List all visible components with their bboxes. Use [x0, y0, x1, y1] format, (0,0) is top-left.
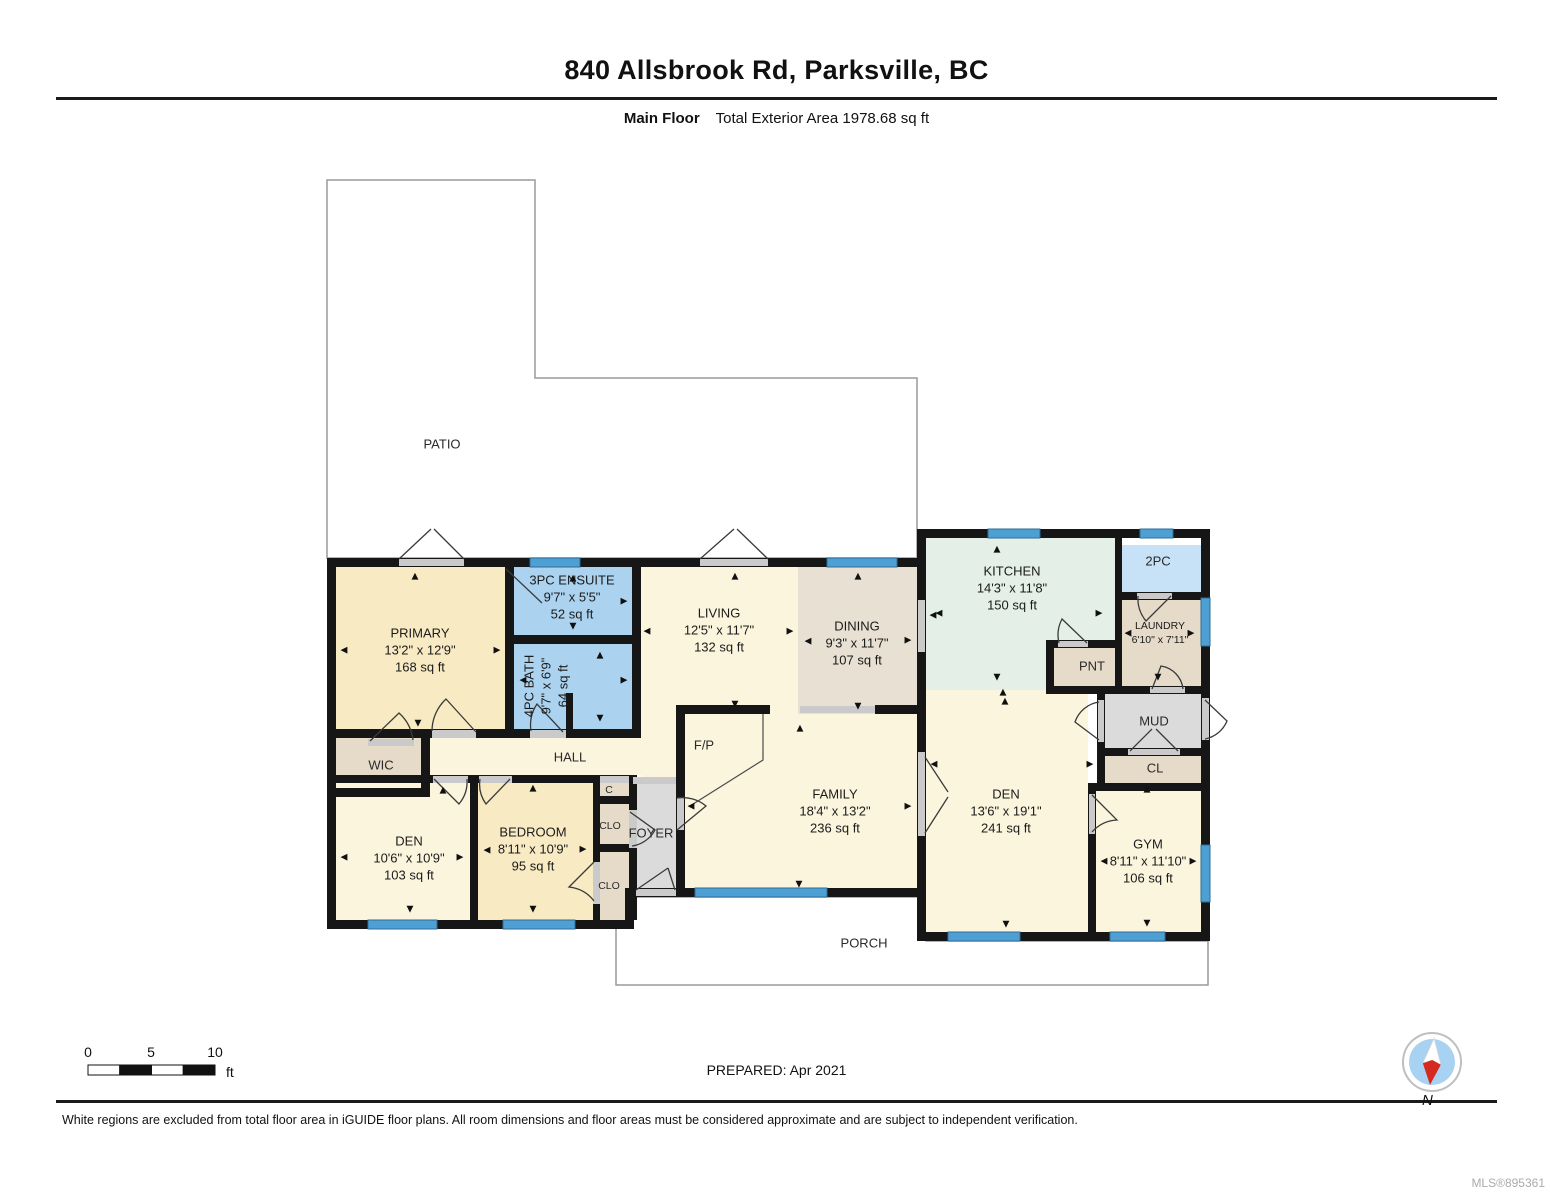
room-fill — [336, 567, 505, 738]
room-fill — [1105, 756, 1201, 783]
door-opening — [399, 559, 464, 566]
scale-tick-0: 0 — [84, 1044, 92, 1060]
wall-segment — [470, 783, 478, 920]
window — [368, 920, 437, 929]
room-fill — [685, 714, 917, 888]
room-fill — [1122, 600, 1201, 686]
window — [1110, 932, 1165, 941]
door-opening — [633, 777, 676, 784]
wall-segment — [632, 558, 641, 738]
room-fill — [1122, 545, 1201, 592]
scale-tick-5: 5 — [147, 1044, 155, 1060]
window — [988, 529, 1040, 538]
door-opening — [700, 559, 768, 566]
floor-name: Main Floor — [624, 110, 700, 127]
room-fill — [641, 705, 676, 777]
room-fill — [926, 690, 1088, 932]
room-fill — [1054, 648, 1115, 686]
wall-segment — [1088, 783, 1210, 791]
door-opening — [800, 706, 875, 713]
wall-segment — [1046, 686, 1210, 694]
window — [530, 558, 580, 567]
disclaimer-text: White regions are excluded from total fl… — [62, 1113, 1078, 1127]
mls-number: MLS®895361 — [1471, 1176, 1545, 1190]
room-fill — [637, 784, 676, 888]
door-opening — [368, 739, 414, 746]
wall-segment — [327, 788, 430, 797]
header-divider — [56, 97, 1497, 100]
window — [948, 932, 1020, 941]
window — [827, 558, 897, 567]
room-fill — [510, 567, 632, 635]
door-opening — [600, 776, 629, 783]
window — [1201, 598, 1210, 646]
wall-segment — [566, 693, 573, 729]
door-opening — [433, 776, 468, 783]
page-title: 840 Allsbrook Rd, Parksville, BC — [0, 55, 1553, 86]
wall-segment — [1115, 538, 1122, 694]
door-opening — [1150, 687, 1185, 693]
door-opening — [1128, 749, 1180, 755]
wall-segment — [676, 705, 770, 714]
wall-segment — [917, 529, 926, 567]
window — [695, 888, 827, 897]
window — [503, 920, 575, 929]
prepared-date: PREPARED: Apr 2021 — [0, 1062, 1553, 1078]
window — [1201, 845, 1210, 902]
window — [1140, 529, 1173, 538]
room-fill — [600, 804, 629, 844]
floor-subtitle: Main FloorTotal Exterior Area 1978.68 sq… — [0, 110, 1553, 127]
exterior-area: Total Exterior Area 1978.68 sq ft — [716, 110, 929, 127]
door-opening — [1058, 641, 1088, 647]
door-opening — [1202, 698, 1209, 740]
room-fill — [600, 783, 629, 796]
door-opening — [1137, 593, 1172, 599]
room-fill — [336, 783, 470, 920]
door-opening — [530, 730, 566, 738]
room-fill — [478, 783, 593, 920]
footer-divider — [56, 1100, 1497, 1103]
door-opening — [918, 600, 925, 652]
patio-outline — [327, 180, 917, 558]
compass-north-label: N — [1422, 1092, 1433, 1109]
room-fill — [641, 567, 798, 715]
door-opening — [1098, 700, 1104, 742]
door-opening — [593, 862, 600, 904]
door-opening — [432, 730, 476, 738]
door-opening — [636, 889, 676, 896]
room-fill — [798, 567, 917, 715]
wall-segment — [505, 635, 641, 644]
scale-tick-10: 10 — [207, 1044, 223, 1060]
door-opening — [1089, 794, 1095, 834]
room-fill — [600, 852, 629, 920]
wall-segment — [421, 738, 430, 797]
door-opening — [918, 752, 925, 836]
room-fill — [1105, 694, 1201, 748]
wall-segment — [505, 558, 514, 738]
floor-plan-drawing: 0 5 10 ft — [0, 0, 1553, 1200]
wall-segment — [327, 558, 336, 929]
room-fill — [1096, 791, 1201, 932]
